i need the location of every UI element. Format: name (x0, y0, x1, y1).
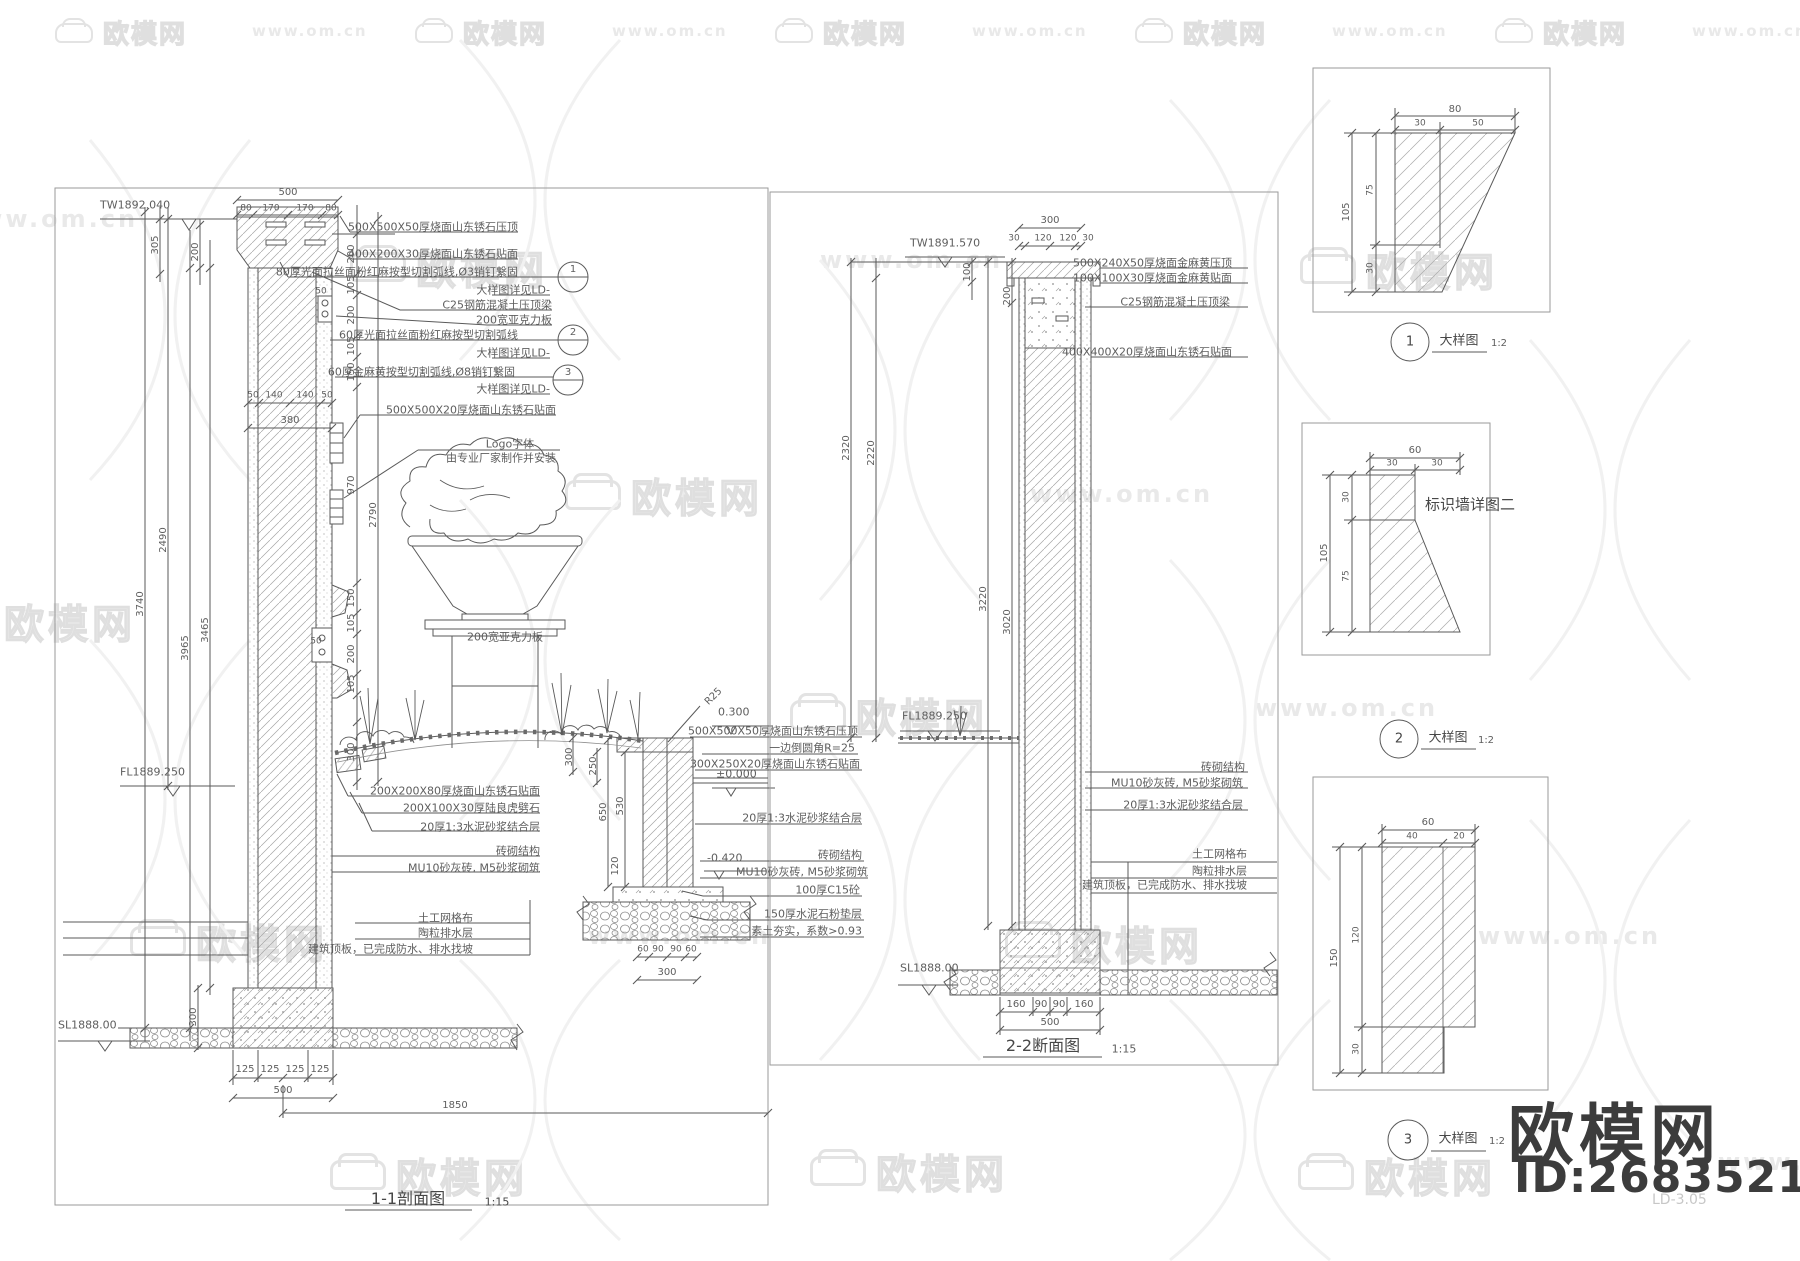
dim-label: 30 (1343, 491, 1352, 502)
dim-label: 30 (1082, 235, 1093, 244)
dim-label: 40 (1406, 833, 1417, 842)
dim-label: 60 (685, 946, 696, 955)
dim-label: 105 (1342, 202, 1352, 221)
level-label: -0.420 (707, 853, 742, 864)
dim-label: 3220 (979, 586, 989, 611)
detail-scale: 1:2 (1491, 339, 1507, 349)
dim-label: 140 (265, 392, 282, 401)
dim-label: 150 (347, 588, 357, 607)
annotation: 陶粒排水层 (418, 928, 473, 939)
annotation: 200宽亚克力板 (467, 632, 543, 643)
dim-label: 160 (1006, 1000, 1025, 1010)
dim-label: 380 (280, 416, 299, 426)
dim-label: 75 (1343, 570, 1352, 581)
dim-label: 1850 (442, 1101, 467, 1111)
annotation: 20厚1:3水泥砂浆结合层 (1123, 800, 1243, 811)
detail-scale: 1:2 (1478, 736, 1494, 746)
annotation: MU10砂灰砖, M5砂浆砌筑 (408, 863, 540, 874)
dim-label: 650 (599, 802, 609, 821)
dim-label: 50 (310, 638, 321, 647)
dim-label: 90 (1035, 1000, 1048, 1010)
dim-label: 30 (1414, 120, 1425, 129)
detail1-stone (1395, 133, 1515, 292)
dim-label: 120 (611, 856, 621, 875)
annotation: 由专业厂家制作并安装 (446, 453, 556, 464)
annotation: 砖砌结构 (496, 846, 540, 857)
dim-label: 60 (1422, 818, 1435, 828)
annotation: 砖砌结构 (1201, 762, 1245, 773)
dim-label: 75 (1367, 184, 1376, 195)
dim-label: 3965 (181, 635, 191, 660)
dim-label: 80 (240, 205, 251, 214)
annotation: 100X100X30厚烧面金麻黄贴面 (1073, 273, 1232, 284)
dim-label: 200 (191, 242, 201, 261)
dim-label: 200 (347, 305, 357, 324)
annotation: 500X500X50厚烧面山东锈石压顶 (348, 222, 518, 233)
section-scale: 1:15 (485, 1197, 510, 1208)
dim-label: 100 (963, 262, 973, 281)
page-subtitle: 标识墙详图二 (1425, 498, 1515, 513)
annotation: 大样图详见LD- (476, 384, 550, 395)
annotation: 200X100X30厚陆良虎劈石 (403, 803, 540, 814)
annotation: 大样图详见LD- (476, 285, 550, 296)
annotation: C25钢筋混凝土压顶梁 (442, 300, 552, 311)
dim-label: 125 (260, 1065, 279, 1075)
annotation: 素土夯实，系数>0.93 (751, 926, 862, 937)
dim-label: 20 (1453, 833, 1464, 842)
dim-label: 30 (1008, 235, 1019, 244)
dim-label: 140 (296, 392, 313, 401)
dim-label: 300 (189, 1007, 199, 1026)
dim-label: 500 (273, 1086, 292, 1096)
dim-label: 80 (1449, 105, 1462, 115)
dim-label: 3465 (201, 617, 211, 642)
annotation: 100厚C15砼 (795, 885, 860, 896)
dim-label: 160 (1074, 1000, 1093, 1010)
dim-label: 170 (296, 205, 313, 214)
annotation: 土工网格布 (1192, 849, 1247, 860)
annotation: 陶粒排水层 (1192, 866, 1247, 877)
dim-label: 300 (565, 747, 575, 766)
detail-title: 大样图 (1439, 335, 1478, 348)
annotation: 500X500X20厚烧面山东锈石贴面 (386, 405, 556, 416)
concrete-beam (1025, 278, 1075, 348)
dim-label: 300 (347, 742, 357, 761)
dim-label: 60 (637, 946, 648, 955)
dim-label: 970 (347, 475, 357, 494)
dim-label: 250 (589, 756, 599, 775)
annotation: 20厚1:3水泥砂浆结合层 (742, 813, 862, 824)
dim-label: 50 (315, 288, 326, 297)
detail-number: 2 (1395, 733, 1403, 746)
dim-label: 170 (262, 205, 279, 214)
detail3-stone (1382, 847, 1475, 1027)
wall-core (258, 268, 316, 988)
annotation: 60厚金麻黄按型切割弧线,Ø8销钉繋固 (328, 367, 515, 378)
dim-label: 90 (1053, 1000, 1066, 1010)
bubble-number: 2 (570, 328, 576, 338)
dim-label: 30 (1367, 262, 1376, 273)
bubble-number: 3 (565, 368, 571, 378)
section-title: 2-2断面图 (1006, 1038, 1080, 1054)
annotation: 400X200X30厚烧面山东锈石贴面 (348, 249, 518, 260)
level-label: 0.300 (718, 707, 750, 718)
section-title: 1-1剖面图 (371, 1191, 445, 1207)
dim-label: 150 (1330, 948, 1340, 967)
footer-id: ID:2683521 (1514, 1152, 1800, 1203)
dim-label: 2220 (867, 440, 877, 465)
dim-label: 2320 (842, 435, 852, 460)
annotation: 300X250X20厚烧面山东锈石贴面 (690, 759, 860, 770)
level-label: FL1889.250 (902, 711, 967, 722)
dim-label: 530 (616, 796, 626, 815)
wall-outer-skin (1081, 278, 1091, 930)
dim-label: 90 (670, 946, 681, 955)
annotation: 20厚1:3水泥砂浆结合层 (420, 822, 540, 833)
dim-label: 30 (1431, 460, 1442, 469)
dim-label: 105 (347, 613, 357, 632)
level-label: SL1888.00 (900, 963, 959, 974)
level-label: SL1888.00 (58, 1020, 117, 1031)
dim-label: 500 (1040, 1018, 1059, 1028)
detail-title: 大样图 (1438, 1133, 1477, 1146)
annotation: MU10砂灰砖, M5砂浆砌筑 (736, 867, 868, 878)
annotation: 500X240X50厚烧面金麻黄压顶 (1073, 258, 1232, 269)
dim-label: 50 (321, 392, 332, 401)
dim-label: 2790 (369, 502, 379, 527)
dim-label: 125 (310, 1065, 329, 1075)
dim-label: 300 (1040, 216, 1059, 226)
level-label: TW1891.570 (910, 238, 980, 249)
annotation: 150厚水泥石粉垫层 (764, 909, 862, 920)
annotation: 400X400X20厚烧面山东锈石贴面 (1062, 347, 1232, 358)
dim-label: 200 (347, 644, 357, 663)
annotation: 砖砌结构 (818, 850, 862, 861)
wall-facing-left (248, 268, 258, 988)
detail-drawings (1302, 68, 1550, 1160)
detail-number: 3 (1404, 1134, 1412, 1147)
dim-label: 125 (235, 1065, 254, 1075)
annotation: 200X200X80厚烧面山东锈石贴面 (370, 786, 540, 797)
level-label: TW1892.040 (100, 200, 170, 211)
detail-scale: 1:2 (1489, 1137, 1505, 1147)
dim-label: 120 (1059, 235, 1076, 244)
annotation: 200宽亚克力板 (476, 315, 552, 326)
dim-label: 80 (325, 205, 336, 214)
dim-label: 200 (1003, 286, 1013, 305)
annotation: 500X500X50厚烧面山东锈石压顶 (688, 726, 858, 737)
dim-label: 30 (1353, 1043, 1362, 1054)
bubble-number: 1 (570, 265, 576, 275)
annotation: C25钢筋混凝土压顶梁 (1120, 297, 1230, 308)
dim-label: 305 (151, 235, 161, 254)
dim-label: 125 (285, 1065, 304, 1075)
dim-label: 105 (347, 674, 357, 693)
dim-label: 120 (1034, 235, 1051, 244)
annotation: 大样图详见LD- (476, 348, 550, 359)
annotation: 建筑顶板，已完成防水、排水找坡 (308, 944, 473, 955)
dim-label: 50 (1472, 120, 1483, 129)
section-scale: 1:15 (1112, 1044, 1137, 1055)
dim-label: 3020 (1003, 609, 1013, 634)
annotation: 60厚光面拉丝面粉红麻按型切割弧线 (339, 330, 518, 341)
dim-label: 105 (1320, 543, 1330, 562)
cad-sheet: 欧模网 欧模网 欧模网 欧模网 欧模网 www.om.cn www.om.cn … (0, 0, 1800, 1261)
detail-number: 1 (1406, 336, 1414, 349)
annotation: MU10砂灰砖, M5砂浆砌筑 (1111, 778, 1243, 789)
dim-label: 500 (278, 188, 297, 198)
annotation: 一边倒圆角R=25 (769, 743, 855, 754)
level-label: FL1889.250 (120, 767, 185, 778)
dim-label: 50 (247, 392, 258, 401)
dim-label: 60 (1409, 446, 1422, 456)
annotation: 80厚光面拉丝面粉红麻按型切割弧线,Ø3销钉繋固 (276, 267, 518, 278)
dim-label: 30 (1386, 460, 1397, 469)
annotation: 建筑顶板，已完成防水、排水找坡 (1082, 880, 1247, 891)
dim-label: 120 (1353, 926, 1362, 943)
dim-label: 300 (657, 968, 676, 978)
dim-label: 2490 (159, 527, 169, 552)
dim-label: 90 (652, 946, 663, 955)
planter (401, 438, 582, 748)
dim-label: 3740 (136, 591, 146, 616)
detail-title: 大样图 (1428, 732, 1467, 745)
annotation: Logo字体 (486, 439, 534, 450)
annotation: 土工网格布 (418, 913, 473, 924)
